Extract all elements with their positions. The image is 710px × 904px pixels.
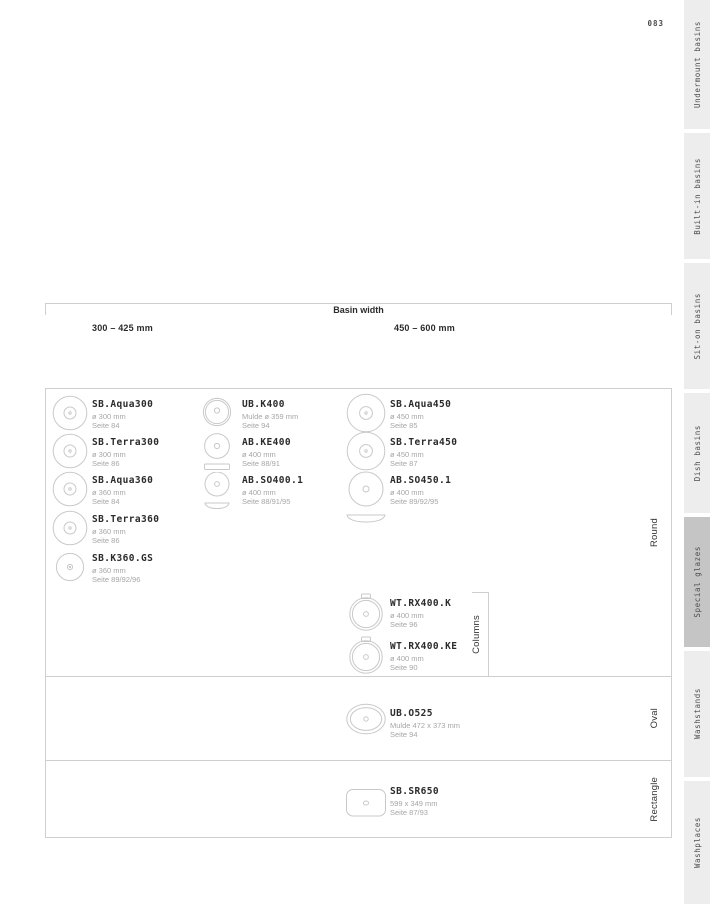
sidebar-item-built-in-basins[interactable]: Built-in basins	[684, 133, 710, 259]
product-page-ref: Seite 85	[390, 421, 451, 430]
basin-width-title: Basin width	[45, 305, 672, 315]
round-basin-icon	[52, 471, 88, 507]
product-page-ref: Seite 88/91	[242, 459, 291, 468]
product-detail: ø 360 mm	[92, 488, 153, 497]
columns-bracket-line	[488, 592, 489, 676]
product-page-ref: Seite 89/92/96	[92, 575, 153, 584]
sidebar-item-label: Built-in basins	[693, 158, 702, 235]
round-basin-icon	[346, 431, 386, 471]
product-entry: SB.Terra300ø 300 mmSeite 86	[70, 438, 159, 468]
round-basin-ring-icon	[202, 397, 232, 427]
product-page-ref: Seite 94	[390, 730, 460, 739]
product-name: UB.K400	[242, 400, 298, 410]
product-page-ref: Seite 87	[390, 459, 457, 468]
rectangle-basin-icon	[345, 788, 387, 818]
product-name: SB.SR650	[390, 787, 439, 797]
product-name: SB.Terra450	[390, 438, 457, 448]
product-name: SB.Terra300	[92, 438, 159, 448]
product-page-ref: Seite 88/91/95	[242, 497, 303, 506]
product-entry: AB.SO400.1ø 400 mmSeite 88/91/95	[217, 476, 303, 506]
round-basin-tap-icon	[348, 593, 384, 633]
product-detail: ø 400 mm	[390, 654, 457, 663]
row-label-text: Round	[649, 518, 660, 547]
product-entry: UB.K400Mulde ø 359 mmSeite 94	[217, 400, 298, 430]
sidebar-item-undermount-basins[interactable]: Undermount basins	[684, 0, 710, 129]
columns-label-text: Columns	[471, 615, 482, 654]
product-detail: ø 360 mm	[92, 527, 159, 536]
row-divider	[45, 760, 672, 761]
product-detail: Mulde 472 x 373 mm	[390, 721, 460, 730]
product-page-ref: Seite 94	[242, 421, 298, 430]
oval-basin-icon	[345, 702, 387, 736]
row-label-round: Round	[640, 388, 668, 676]
product-detail: ø 450 mm	[390, 412, 451, 421]
row-label-oval: Oval	[640, 676, 668, 760]
product-page-ref: Seite 84	[92, 421, 153, 430]
product-page-ref: Seite 89/92/95	[390, 497, 451, 506]
product-detail: ø 400 mm	[390, 488, 451, 497]
columns-group-label: Columns	[466, 598, 486, 670]
row-label-text: Oval	[649, 708, 660, 728]
product-entry: SB.K360.GSø 360 mmSeite 89/92/96	[70, 554, 153, 584]
product-entry: SB.Aqua360ø 360 mmSeite 84	[70, 476, 153, 506]
product-detail: 599 x 349 mm	[390, 799, 439, 808]
row-label-rectangle: Rectangle	[640, 760, 668, 838]
product-entry: UB.O525Mulde 472 x 373 mmSeite 94	[366, 709, 460, 739]
product-name: AB.SO400.1	[242, 476, 303, 486]
product-page-ref: Seite 87/93	[390, 808, 439, 817]
product-entry: SB.Terra360ø 360 mmSeite 86	[70, 515, 159, 545]
round-basin-icon	[346, 393, 386, 433]
round-basin-wide-dish-icon	[344, 471, 388, 525]
sidebar-item-label: Washplaces	[693, 817, 702, 868]
round-basin-icon	[52, 433, 88, 469]
column-header-300-425: 300 – 425 mm	[92, 323, 153, 333]
product-detail: ø 360 mm	[92, 566, 153, 575]
product-page-ref: Seite 96	[390, 620, 451, 629]
round-basin-tap-icon	[348, 636, 384, 676]
product-name: SB.Terra360	[92, 515, 159, 525]
sidebar-item-washstands[interactable]: Washstands	[684, 651, 710, 777]
product-name: SB.Aqua360	[92, 476, 153, 486]
product-detail: ø 300 mm	[92, 450, 159, 459]
round-basin-dish-icon	[202, 472, 232, 514]
product-detail: ø 400 mm	[242, 488, 303, 497]
product-entry: WT.RX400.Kø 400 mmSeite 96	[366, 599, 451, 629]
product-name: WT.RX400.K	[390, 599, 451, 609]
product-detail: ø 300 mm	[92, 412, 153, 421]
sidebar-item-washplaces[interactable]: Washplaces	[684, 781, 710, 904]
sidebar-item-dish-basins[interactable]: Dish basins	[684, 393, 710, 513]
sidebar-item-label: Undermount basins	[693, 21, 702, 108]
product-name: UB.O525	[390, 709, 460, 719]
product-page-ref: Seite 86	[92, 459, 159, 468]
product-detail: Mulde ø 359 mm	[242, 412, 298, 421]
row-label-text: Rectangle	[649, 777, 660, 822]
row-divider	[45, 676, 672, 677]
product-entry: SB.Aqua450ø 450 mmSeite 85	[366, 400, 451, 430]
sidebar-item-sit-on-basins[interactable]: Sit-on basins	[684, 263, 710, 389]
product-entry: SB.SR650599 x 349 mmSeite 87/93	[366, 787, 439, 817]
columns-bracket-tick	[472, 592, 488, 593]
sidebar-item-special-glazes[interactable]: Special glazes	[684, 517, 710, 647]
product-entry: SB.Terra450ø 450 mmSeite 87	[366, 438, 457, 468]
product-entry: AB.SO450.1ø 400 mmSeite 89/92/95	[366, 476, 451, 506]
sidebar-item-label: Washstands	[693, 688, 702, 739]
round-basin-icon	[52, 395, 88, 431]
product-detail: ø 400 mm	[242, 450, 291, 459]
product-name: SB.K360.GS	[92, 554, 153, 564]
product-page-ref: Seite 84	[92, 497, 153, 506]
product-page-ref: Seite 90	[390, 663, 457, 672]
product-name: SB.Aqua450	[390, 400, 451, 410]
round-basin-saucer-icon	[202, 433, 232, 475]
product-detail: ø 400 mm	[390, 611, 451, 620]
sidebar-item-label: Sit-on basins	[693, 293, 702, 360]
product-name: AB.KE400	[242, 438, 291, 448]
product-entry: WT.RX400.KEø 400 mmSeite 90	[366, 642, 457, 672]
product-entry: AB.KE400ø 400 mmSeite 88/91	[217, 438, 291, 468]
product-page-ref: Seite 86	[92, 536, 159, 545]
catalog-page: 083 Undermount basins Built-in basins Si…	[0, 0, 710, 904]
sidebar-item-label: Dish basins	[693, 425, 702, 481]
product-entry: SB.Aqua300ø 300 mmSeite 84	[70, 400, 153, 430]
sidebar-item-label: Special glazes	[693, 546, 702, 618]
product-name: AB.SO450.1	[390, 476, 451, 486]
round-basin-icon	[52, 510, 88, 546]
round-basin-small-icon	[55, 552, 85, 582]
column-header-450-600: 450 – 600 mm	[394, 323, 455, 333]
product-detail: ø 450 mm	[390, 450, 457, 459]
page-number: 083	[616, 19, 664, 28]
product-name: WT.RX400.KE	[390, 642, 457, 652]
product-name: SB.Aqua300	[92, 400, 153, 410]
